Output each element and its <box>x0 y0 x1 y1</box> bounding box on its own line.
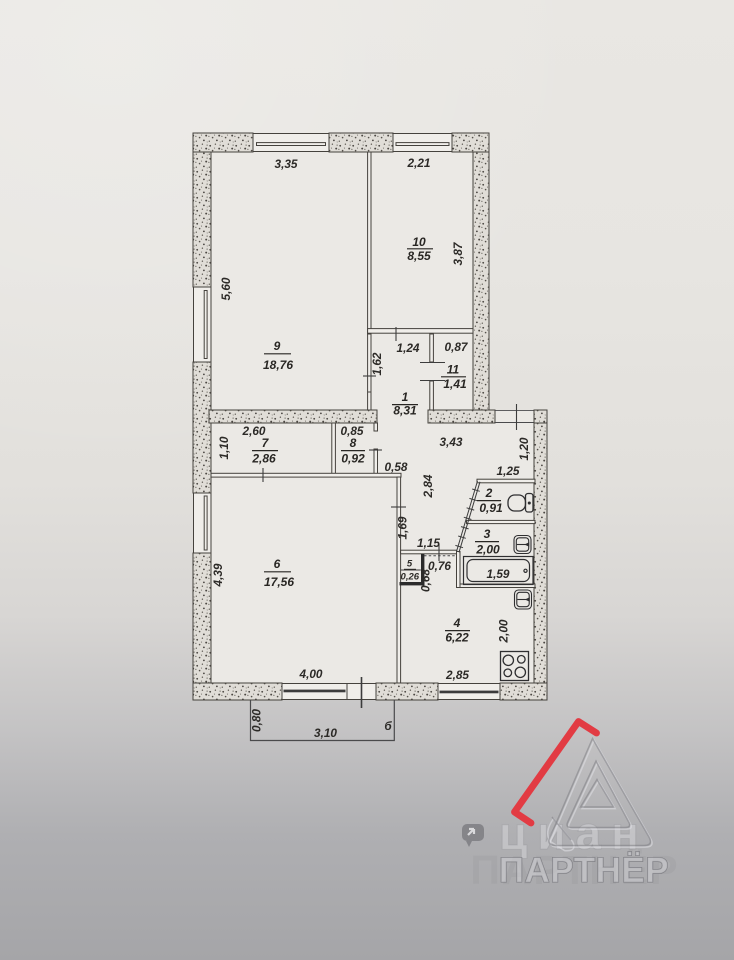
svg-text:1,20: 1,20 <box>517 437 531 460</box>
svg-text:9: 9 <box>274 339 281 353</box>
svg-text:2,84: 2,84 <box>421 474 435 498</box>
svg-text:3,10: 3,10 <box>314 726 337 740</box>
svg-text:2,60: 2,60 <box>242 424 266 438</box>
svg-text:1,24: 1,24 <box>397 341 420 355</box>
svg-text:2,00: 2,00 <box>497 619 511 643</box>
svg-text:8,55: 8,55 <box>407 249 431 263</box>
svg-text:0,58: 0,58 <box>385 460 408 474</box>
svg-text:3: 3 <box>484 527 491 541</box>
svg-text:1,41: 1,41 <box>443 377 467 391</box>
svg-text:1: 1 <box>402 390 409 404</box>
svg-text:3,35: 3,35 <box>275 157 298 171</box>
svg-text:4,00: 4,00 <box>299 667 323 681</box>
svg-text:8,31: 8,31 <box>393 404 417 418</box>
svg-text:3,87: 3,87 <box>451 241 465 265</box>
svg-text:4,39: 4,39 <box>211 563 225 587</box>
svg-text:2,21: 2,21 <box>407 156 431 170</box>
svg-text:8: 8 <box>350 436 357 450</box>
svg-text:0,92: 0,92 <box>341 452 365 466</box>
svg-text:1,62: 1,62 <box>370 352 384 375</box>
svg-text:17,56: 17,56 <box>264 575 294 589</box>
svg-text:0,87: 0,87 <box>445 340 469 354</box>
svg-text:3,43: 3,43 <box>440 435 463 449</box>
svg-text:0,91: 0,91 <box>479 501 503 515</box>
svg-text:2: 2 <box>485 486 493 500</box>
svg-text:ПАРТНЁР: ПАРТНЁР <box>499 851 669 890</box>
svg-text:6: 6 <box>274 557 281 571</box>
svg-text:1,59: 1,59 <box>487 567 510 581</box>
svg-text:0,85: 0,85 <box>341 424 364 438</box>
svg-text:5: 5 <box>407 559 413 570</box>
svg-text:5,60: 5,60 <box>219 277 233 300</box>
svg-text:11: 11 <box>447 363 460 377</box>
svg-text:1,10: 1,10 <box>217 436 231 459</box>
svg-text:4: 4 <box>453 616 461 630</box>
svg-text:1,25: 1,25 <box>497 464 520 478</box>
svg-text:1,15: 1,15 <box>417 536 440 550</box>
svg-text:1,69: 1,69 <box>396 516 410 539</box>
svg-text:18,76: 18,76 <box>263 358 293 372</box>
svg-text:2,86: 2,86 <box>251 452 276 466</box>
svg-text:2,85: 2,85 <box>445 668 469 682</box>
svg-text:0,80: 0,80 <box>250 709 264 732</box>
svg-text:0,26: 0,26 <box>401 572 420 583</box>
svg-text:10: 10 <box>412 235 426 249</box>
svg-text:6,22: 6,22 <box>445 631 469 645</box>
svg-text:2,00: 2,00 <box>475 543 500 557</box>
svg-text:0,68: 0,68 <box>419 569 433 592</box>
svg-text:б: б <box>384 719 392 733</box>
